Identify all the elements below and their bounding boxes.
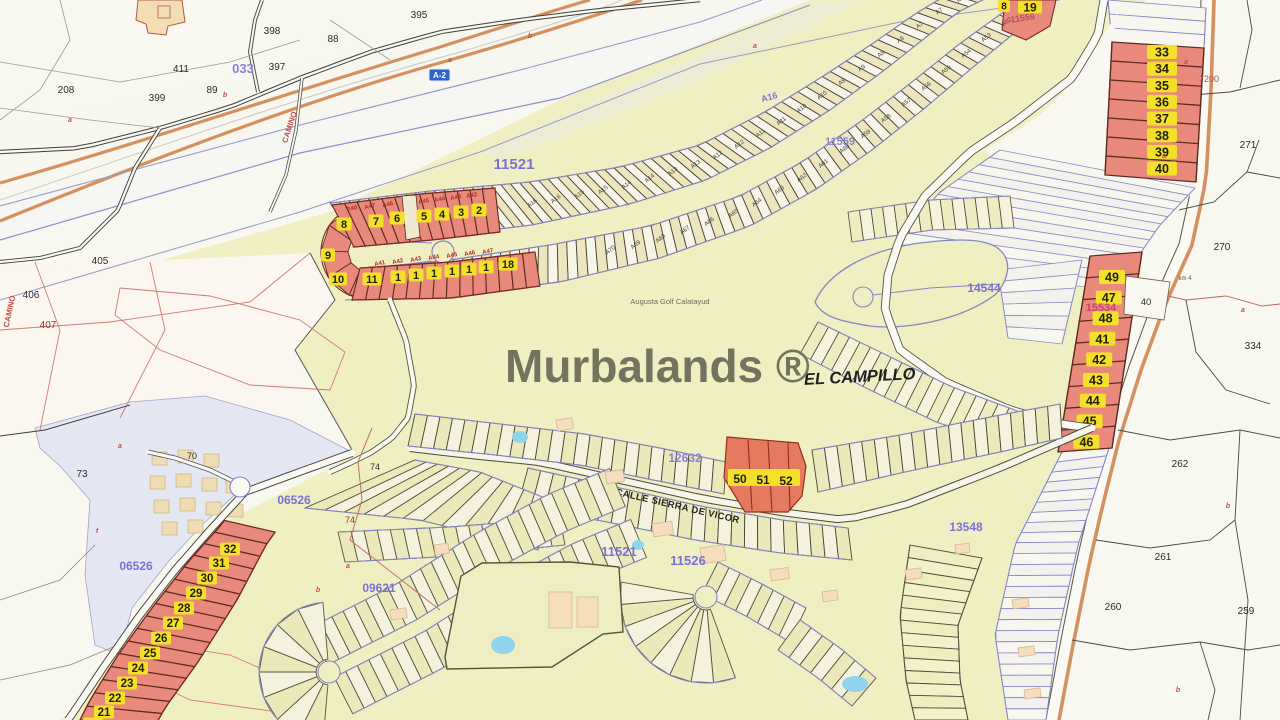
svg-text:14544: 14544	[967, 281, 1001, 295]
svg-text:1: 1	[395, 272, 401, 284]
svg-text:9: 9	[325, 250, 331, 262]
svg-text:11521: 11521	[601, 544, 636, 559]
svg-text:24: 24	[132, 663, 145, 675]
svg-text:11526: 11526	[670, 553, 705, 568]
svg-text:395: 395	[411, 10, 428, 21]
svg-text:73: 73	[76, 469, 88, 480]
svg-text:46: 46	[1079, 435, 1093, 449]
svg-text:334: 334	[1245, 341, 1262, 352]
svg-text:13548: 13548	[949, 520, 983, 534]
svg-text:09621: 09621	[362, 581, 396, 595]
svg-text:8: 8	[341, 219, 347, 231]
svg-text:1: 1	[483, 262, 489, 274]
svg-text:34: 34	[1155, 62, 1169, 76]
svg-text:a: a	[1184, 59, 1188, 66]
svg-text:74: 74	[370, 462, 380, 472]
svg-text:40: 40	[1155, 162, 1169, 176]
svg-text:26: 26	[155, 633, 168, 645]
svg-text:5: 5	[421, 211, 427, 223]
svg-text:b: b	[1176, 687, 1181, 694]
svg-text:1: 1	[431, 268, 437, 280]
svg-text:A-2: A-2	[433, 71, 446, 80]
svg-text:06526: 06526	[277, 493, 311, 507]
svg-text:260: 260	[1105, 602, 1122, 613]
svg-text:25: 25	[144, 648, 157, 660]
svg-text:7: 7	[373, 216, 379, 228]
svg-text:a: a	[68, 117, 72, 124]
svg-text:Murbalands ®: Murbalands ®	[505, 340, 810, 392]
svg-text:208: 208	[58, 85, 75, 96]
svg-text:38: 38	[1155, 129, 1169, 143]
svg-text:32: 32	[224, 544, 237, 556]
svg-text:30: 30	[201, 573, 214, 585]
svg-text:35: 35	[1155, 79, 1169, 93]
svg-text:1: 1	[413, 270, 419, 282]
svg-text:259: 259	[1238, 606, 1255, 617]
svg-text:28: 28	[178, 603, 191, 615]
svg-text:4: 4	[439, 209, 446, 221]
svg-text:b: b	[316, 587, 321, 594]
svg-text:40: 40	[1141, 297, 1152, 308]
svg-text:033: 033	[232, 61, 254, 76]
svg-text:397: 397	[269, 62, 286, 73]
svg-text:7200: 7200	[1199, 74, 1219, 84]
svg-text:b: b	[223, 92, 228, 99]
svg-text:270: 270	[1214, 242, 1231, 253]
svg-text:b: b	[528, 33, 533, 40]
svg-text:a: a	[753, 43, 757, 50]
svg-text:88: 88	[327, 34, 339, 45]
svg-text:12632: 12632	[668, 451, 702, 465]
svg-text:89: 89	[206, 85, 218, 96]
svg-text:a: a	[1241, 307, 1245, 314]
svg-text:3: 3	[458, 207, 464, 219]
svg-text:271: 271	[1240, 140, 1257, 151]
svg-text:37: 37	[1155, 112, 1169, 126]
svg-text:22: 22	[109, 693, 122, 705]
svg-text:49: 49	[1105, 271, 1119, 285]
svg-text:407: 407	[40, 320, 57, 331]
svg-text:261: 261	[1155, 552, 1172, 563]
svg-text:b: b	[1226, 503, 1231, 510]
svg-text:11521: 11521	[494, 156, 535, 173]
svg-text:398: 398	[264, 26, 281, 37]
svg-text:15534: 15534	[1086, 302, 1117, 314]
svg-text:43: 43	[1089, 374, 1103, 388]
svg-text:km 4: km 4	[1178, 276, 1192, 282]
svg-text:06526: 06526	[119, 559, 153, 573]
svg-text:a: a	[346, 563, 350, 570]
svg-text:399: 399	[149, 93, 166, 104]
svg-text:a: a	[118, 443, 122, 450]
svg-text:6: 6	[394, 213, 400, 225]
svg-text:11: 11	[366, 274, 378, 286]
svg-text:23: 23	[121, 678, 134, 690]
svg-text:29: 29	[190, 588, 203, 600]
svg-text:1: 1	[466, 264, 472, 276]
svg-text:411: 411	[173, 64, 189, 75]
svg-text:41: 41	[1095, 332, 1109, 346]
svg-text:1: 1	[449, 266, 455, 278]
svg-text:405: 405	[92, 256, 109, 267]
svg-text:11559: 11559	[825, 136, 855, 148]
svg-text:a: a	[448, 57, 452, 64]
svg-text:18: 18	[502, 259, 514, 271]
svg-text:42: 42	[1092, 353, 1106, 367]
svg-text:406: 406	[23, 290, 40, 301]
svg-text:10: 10	[332, 274, 344, 286]
svg-text:2: 2	[476, 205, 482, 217]
svg-text:262: 262	[1172, 459, 1189, 470]
svg-text:8: 8	[1001, 2, 1007, 13]
svg-text:33: 33	[1155, 46, 1169, 60]
svg-text:Augusta Golf Calatayud: Augusta Golf Calatayud	[630, 297, 709, 306]
svg-text:a: a	[1162, 153, 1166, 160]
svg-text:70: 70	[187, 451, 197, 461]
svg-text:74: 74	[345, 515, 355, 525]
svg-text:44: 44	[1086, 394, 1100, 408]
svg-text:36: 36	[1155, 95, 1169, 109]
svg-text:52: 52	[779, 474, 793, 488]
svg-text:51: 51	[756, 473, 770, 487]
svg-text:27: 27	[167, 618, 180, 630]
svg-text:50: 50	[733, 472, 747, 486]
svg-text:31: 31	[213, 558, 226, 570]
